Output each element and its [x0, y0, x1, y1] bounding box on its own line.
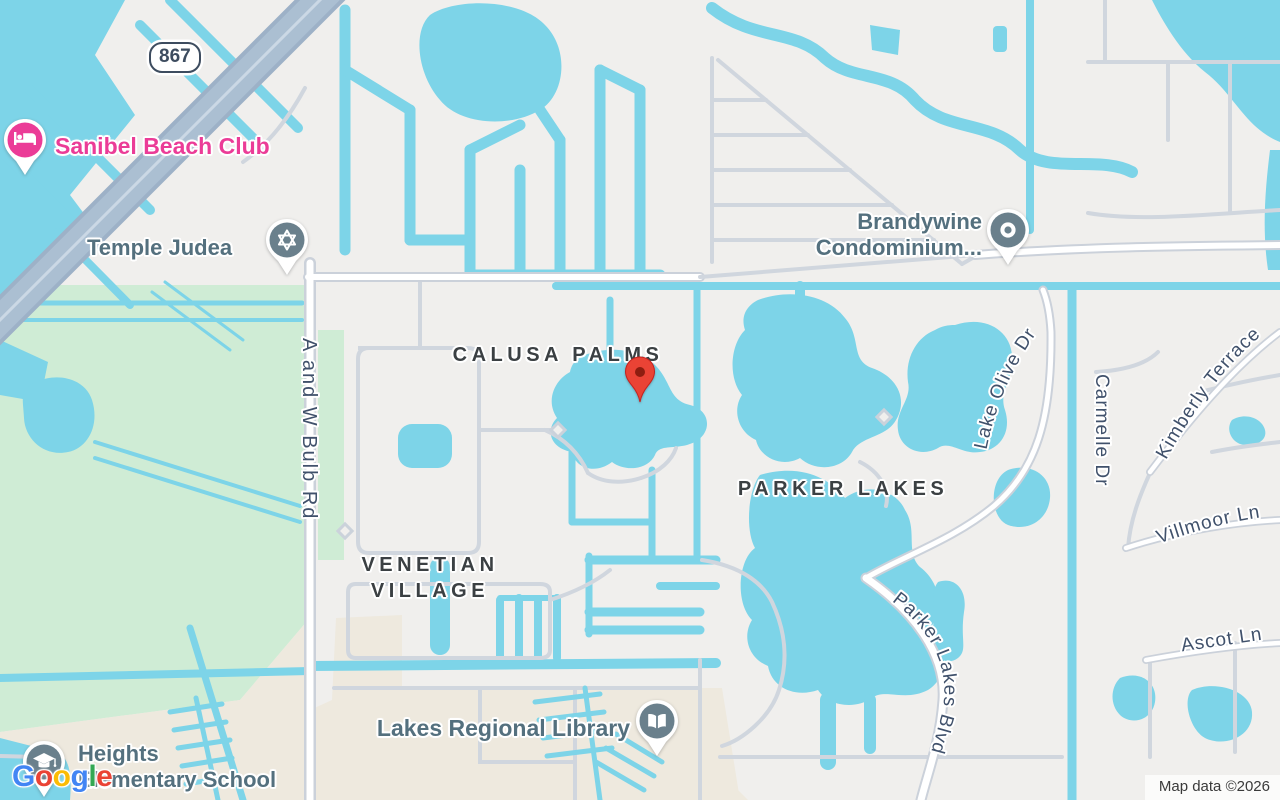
google-map-viewport[interactable]: A and W Bulb Rd Lake Olive Dr Carmelle D… [0, 0, 1280, 800]
area-label-venetian-line2: VILLAGE [361, 578, 498, 604]
poi-label-temple-judea[interactable]: Temple Judea [87, 235, 232, 261]
destination-marker[interactable] [624, 356, 656, 404]
google-logo-letter: o [53, 760, 71, 793]
google-logo-letter: l [88, 760, 96, 793]
google-logo-letter: o [35, 760, 53, 793]
area-label-venetian-village[interactable]: VENETIAN VILLAGE [361, 552, 498, 604]
poi-pin-lakes-regional-library[interactable] [634, 699, 680, 757]
road-label-carmelle-dr: Carmelle Dr [1091, 374, 1112, 486]
area-label-venetian-line1: VENETIAN [361, 552, 498, 578]
poi-pin-brandywine[interactable] [985, 208, 1031, 266]
poi-label-sanibel-beach-club[interactable]: Sanibel Beach Club [55, 133, 270, 159]
poi-label-brandywine[interactable]: Brandywine Condominium... [816, 209, 982, 261]
poi-label-brandywine-line1: Brandywine [816, 209, 982, 235]
circle-dot-icon [985, 208, 1031, 266]
map-attribution: Map data ©2026 [1145, 775, 1280, 800]
poi-pin-sanibel-beach-club[interactable] [2, 118, 48, 176]
poi-pin-temple-judea[interactable] [264, 218, 310, 276]
google-logo-letter: g [71, 760, 89, 793]
area-label-parker-lakes[interactable]: PARKER LAKES [738, 476, 948, 502]
route-badge-867: 867 [149, 42, 201, 73]
star-of-david-icon [264, 218, 310, 276]
red-map-pin [624, 356, 656, 404]
google-logo-letter: G [12, 760, 35, 793]
open-book-icon [634, 699, 680, 757]
google-logo-letter: e [96, 760, 112, 793]
bed-icon [2, 118, 48, 176]
poi-label-brandywine-line2: Condominium... [816, 235, 982, 261]
route-badge-number: 867 [159, 46, 191, 67]
poi-label-lakes-regional-library[interactable]: Lakes Regional Library [377, 715, 630, 741]
road-label-a-and-w-bulb-rd: A and W Bulb Rd [298, 338, 320, 520]
google-logo[interactable]: Google [12, 760, 112, 794]
